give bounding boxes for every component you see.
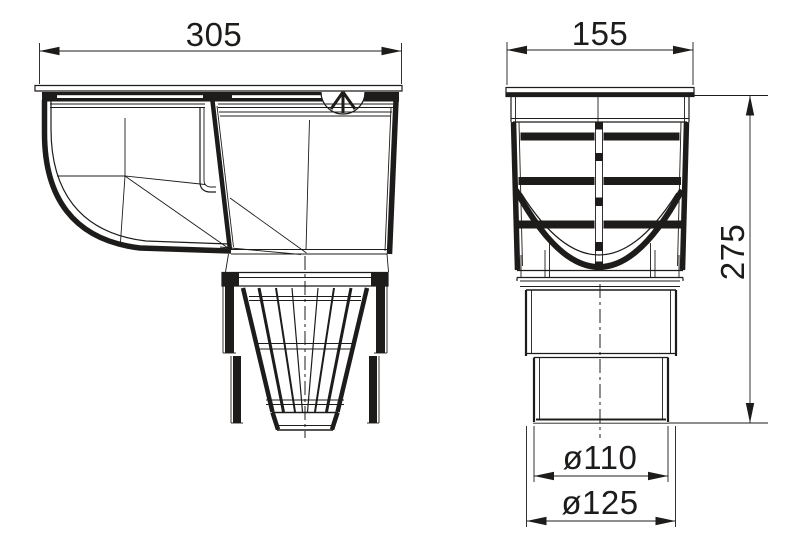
arrow-up-icon xyxy=(746,96,754,116)
technical-drawing-canvas: 305 xyxy=(0,0,800,559)
arrow-right-icon xyxy=(382,47,402,55)
dim-socket-diameter-label: ø125 xyxy=(561,484,638,521)
front-view: 155 275 xyxy=(506,15,768,527)
dim-outlet-diameter-label: ø110 xyxy=(563,439,638,476)
front-grate xyxy=(514,122,687,277)
arrow-left-icon xyxy=(507,46,527,54)
dim-height-label: 275 xyxy=(714,224,751,281)
front-top-plate xyxy=(506,88,694,97)
funnel-body xyxy=(213,101,397,272)
arrow-down-icon xyxy=(746,403,754,423)
front-cap-band xyxy=(511,97,689,123)
gutter-top-plate xyxy=(35,86,402,117)
dimension-outlet-diameter: ø110 xyxy=(534,426,668,482)
dim-side-width-label: 305 xyxy=(186,16,243,53)
arch-detail xyxy=(321,92,365,114)
dimension-front-width: 155 xyxy=(507,15,693,85)
arrow-left-icon xyxy=(534,472,554,480)
dim-front-width-label: 155 xyxy=(572,15,629,52)
outlet-pipe xyxy=(533,284,669,438)
socket-section xyxy=(526,290,676,358)
arrow-right-icon xyxy=(673,46,693,54)
drawing-page: 305 xyxy=(0,0,800,559)
arrow-left-icon xyxy=(40,47,60,55)
arrow-left-icon xyxy=(527,517,547,525)
arrow-right-icon xyxy=(648,472,668,480)
side-view: 305 xyxy=(35,16,402,438)
dimension-side-width: 305 xyxy=(40,16,402,84)
hopper-bowl xyxy=(45,100,232,251)
arrow-right-icon xyxy=(656,517,676,525)
